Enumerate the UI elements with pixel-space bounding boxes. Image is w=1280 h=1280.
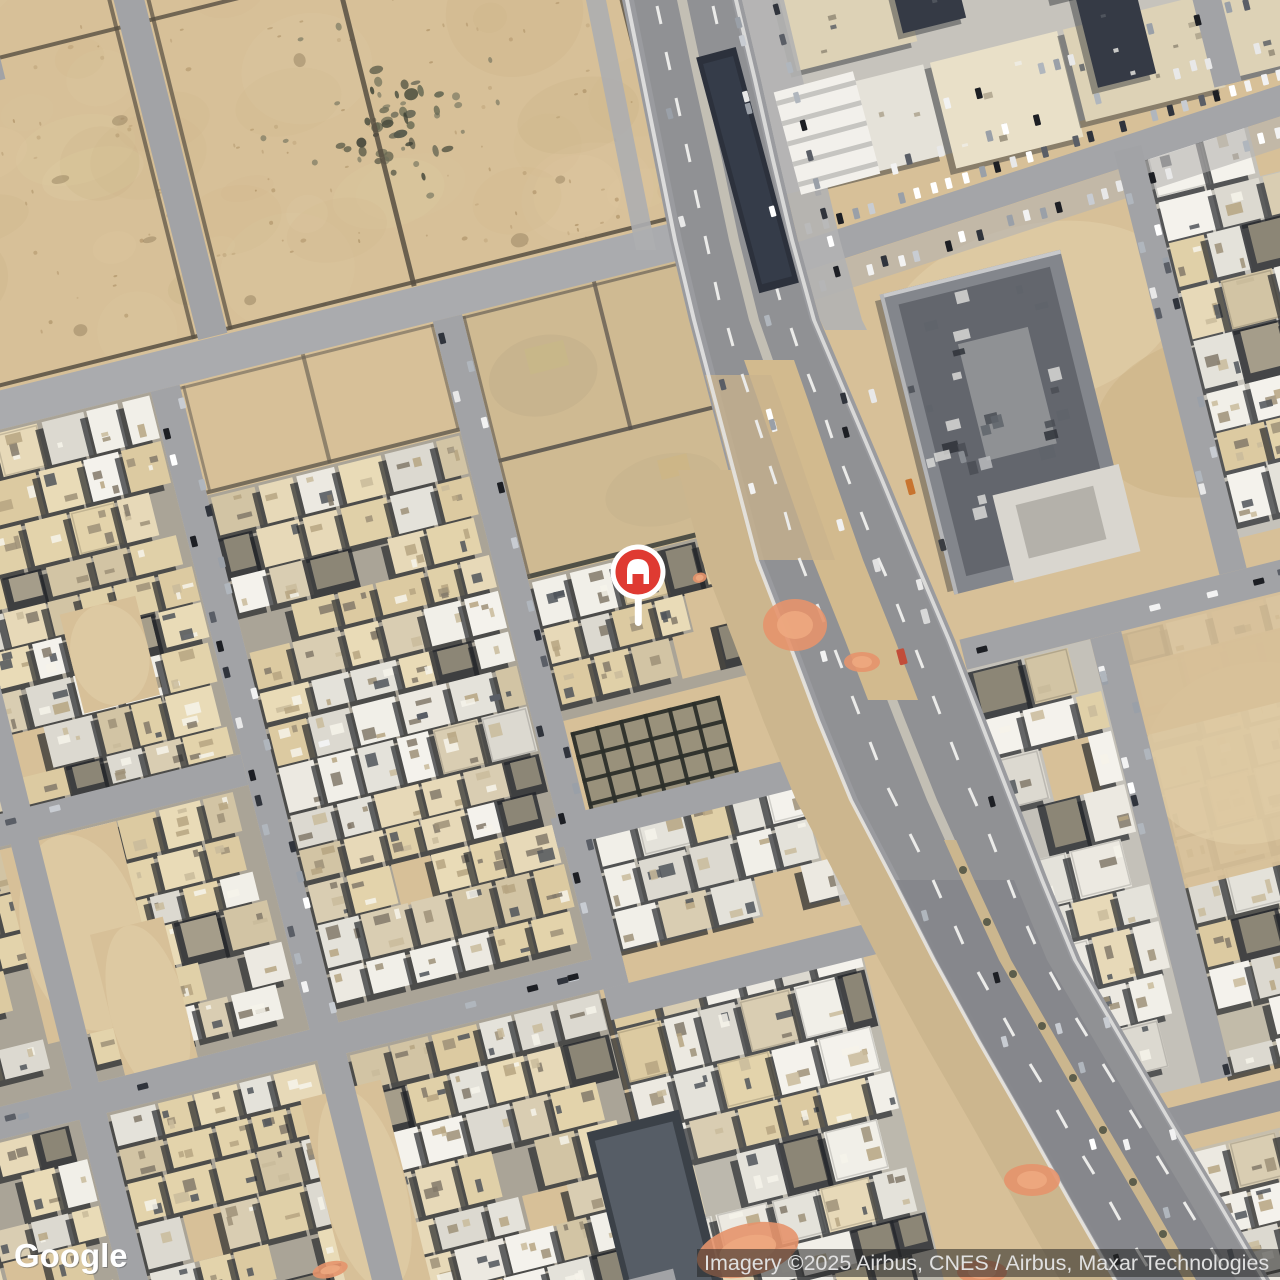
svg-text:Google: Google <box>14 1237 128 1274</box>
svg-text:Imagery ©2025 Airbus, CNES / A: Imagery ©2025 Airbus, CNES / Airbus, Max… <box>704 1251 1269 1275</box>
